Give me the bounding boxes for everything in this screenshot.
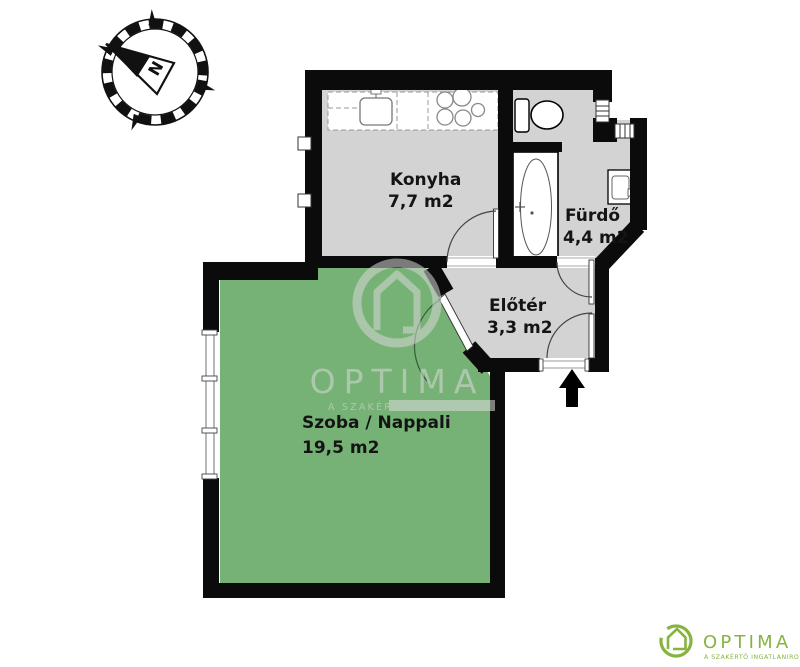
room-eloter-name: Előtér (489, 296, 547, 316)
floor-plan-svg: N (0, 0, 800, 667)
entry-arrow-icon (559, 369, 585, 407)
logo-tagline: A SZAKÉRTŐ INGATLANIRODA (704, 652, 800, 661)
logo-brand: OPTIMA (703, 632, 791, 653)
room-furdo-name: Fürdő (565, 206, 620, 226)
room-konyha-name: Konyha (390, 170, 461, 190)
room-szoba-area: 19,5 m2 (302, 438, 379, 458)
compass-rose-icon: N (98, 9, 215, 130)
room-szoba-name: Szoba / Nappali (302, 413, 451, 433)
logo-house-icon (668, 629, 686, 649)
window-bath-vertical (596, 100, 609, 122)
bathtub-icon (513, 152, 558, 262)
window-bath-horizontal (615, 124, 634, 138)
floor-plan-page: N (0, 0, 800, 667)
logo-circle-icon (655, 620, 697, 662)
window-living-room (201, 330, 219, 479)
company-logo: OPTIMA A SZAKÉRTŐ INGATLANIRODA (655, 620, 800, 662)
watermark-tagline: A SZAKÉRTŐ (328, 401, 410, 413)
room-konyha-area: 7,7 m2 (388, 192, 454, 212)
watermark-brand: OPTIMA (310, 362, 485, 401)
room-eloter-area: 3,3 m2 (487, 318, 553, 338)
room-furdo-area: 4,4 m2 (563, 228, 629, 248)
toilet-icon (515, 99, 563, 132)
